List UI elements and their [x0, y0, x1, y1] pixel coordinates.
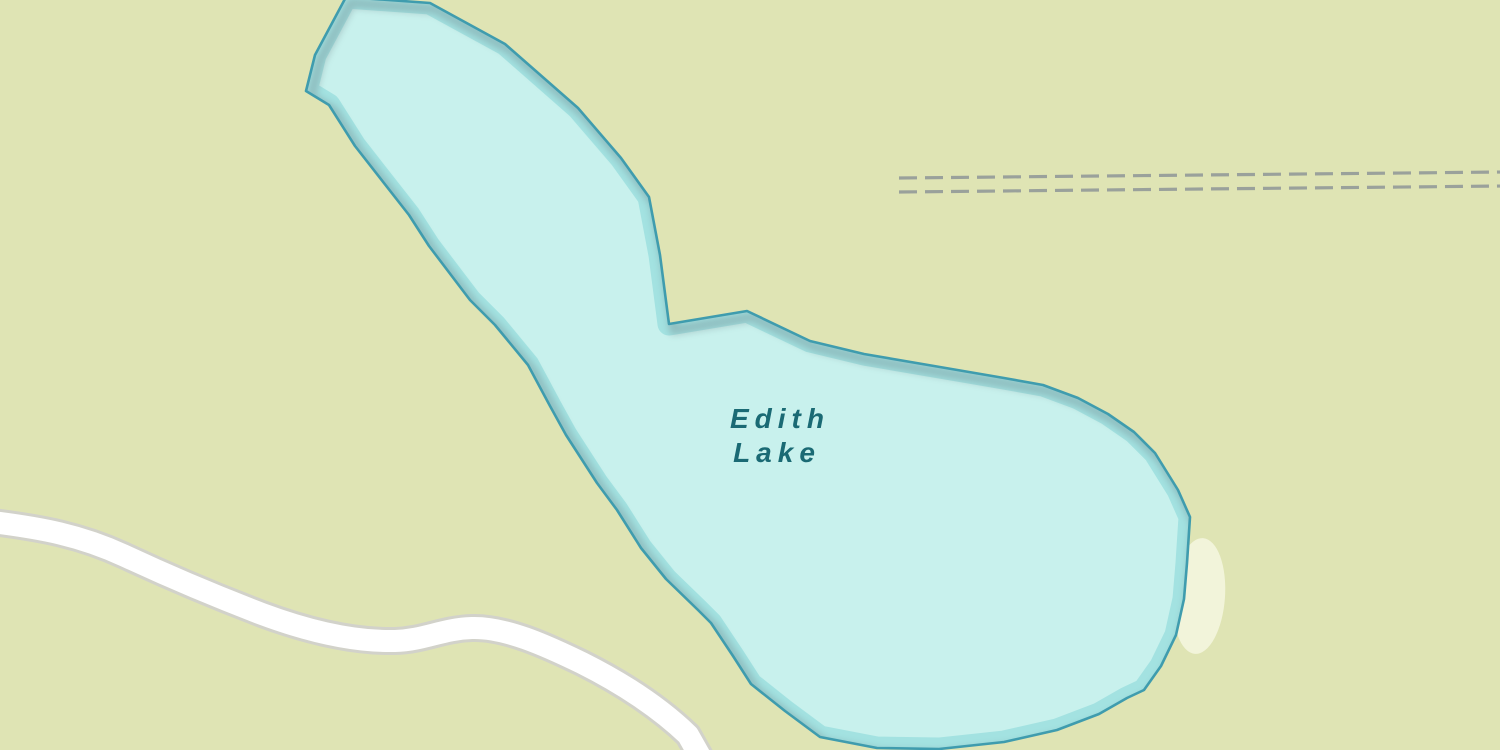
- lake-name-label-line2: Lake: [733, 437, 821, 468]
- map-canvas[interactable]: Edith Lake: [0, 0, 1500, 750]
- map-viewport[interactable]: Edith Lake: [0, 0, 1500, 750]
- lake-name-label-line1: Edith: [730, 403, 830, 434]
